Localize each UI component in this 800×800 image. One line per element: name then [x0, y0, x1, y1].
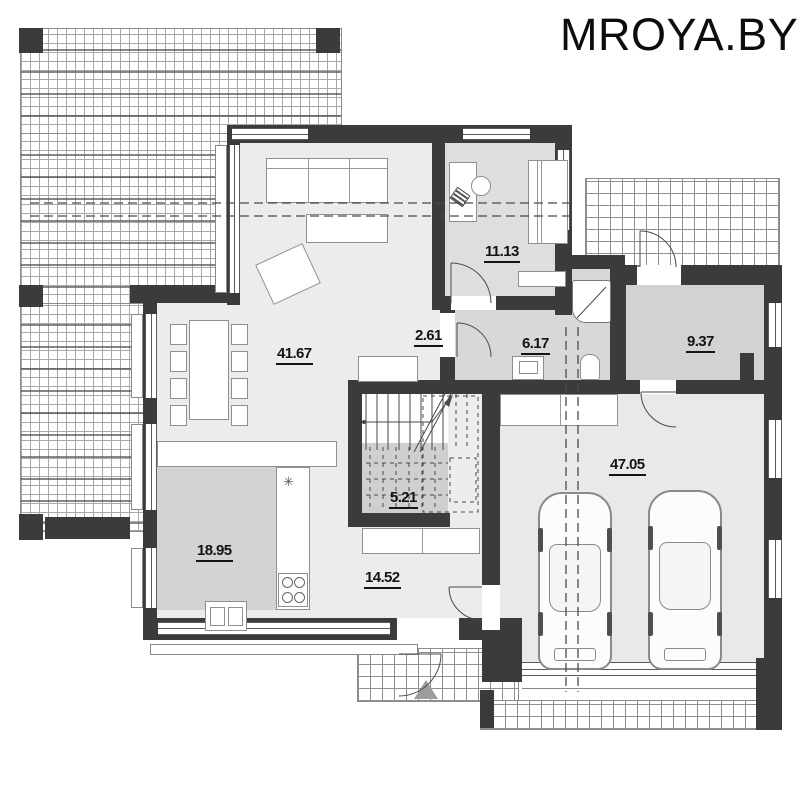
stove: [278, 573, 308, 607]
car: [538, 492, 612, 670]
car-tail: [554, 648, 596, 661]
pergola-column: [19, 514, 43, 540]
dining-chair: [170, 378, 187, 399]
room-label-utility: 9.37: [686, 334, 715, 353]
car-roof: [549, 544, 601, 612]
wall: [496, 296, 572, 310]
window: [158, 622, 390, 635]
pergola-column: [19, 28, 43, 53]
burner-icon: [294, 592, 305, 603]
car: [648, 490, 722, 670]
wall: [482, 630, 522, 682]
door-opening: [640, 265, 681, 285]
wheel-icon: [717, 612, 722, 636]
car-tail: [664, 648, 706, 661]
wheel-icon: [607, 528, 612, 552]
kitchen-sink: [205, 601, 247, 631]
wall: [480, 690, 494, 728]
coffee-table: [306, 214, 388, 243]
window: [768, 303, 782, 347]
toilet: [580, 354, 600, 380]
office-cabinet: [518, 271, 566, 287]
window: [768, 540, 782, 598]
window: [768, 420, 782, 478]
entrance-arrow-icon: [414, 680, 438, 699]
garage-door-track: [522, 688, 756, 689]
window-sill: [131, 548, 143, 608]
office-bed: [528, 160, 568, 244]
bathroom-sink: [512, 356, 544, 380]
driveway-paving: [480, 700, 759, 730]
window: [232, 128, 308, 140]
extractor-fan-icon: ✳: [283, 474, 294, 490]
wall: [482, 392, 500, 585]
door-opening: [482, 585, 500, 630]
sink-bowl: [228, 607, 243, 626]
sink-bowl: [210, 607, 225, 626]
wheel-icon: [648, 612, 653, 636]
window: [145, 424, 157, 510]
window-sill: [131, 314, 143, 398]
room-label-living: 41.67: [276, 346, 313, 365]
room-label-office: 11.13: [484, 244, 520, 263]
dining-chair: [170, 324, 187, 345]
office-chair: [471, 176, 491, 196]
burner-icon: [282, 577, 293, 588]
pergola-column: [19, 285, 43, 307]
burner-icon: [294, 577, 305, 588]
window: [145, 314, 157, 398]
wall: [432, 133, 445, 310]
entry-porch-deck: [585, 178, 780, 267]
wall: [440, 357, 455, 390]
terrace-deck: [20, 28, 342, 135]
room-label-bathroom: 6.17: [521, 336, 550, 355]
hall-wardrobe: [362, 528, 480, 554]
window: [145, 548, 157, 608]
door-opening: [397, 618, 459, 640]
kitchen-sideboard: [157, 441, 337, 467]
shower: [572, 280, 611, 323]
window: [463, 128, 530, 140]
wall: [756, 658, 782, 730]
hall-bench: [358, 356, 418, 382]
dining-chair: [170, 351, 187, 372]
terrace-deck: [20, 133, 229, 305]
wheel-icon: [717, 526, 722, 550]
dining-chair: [231, 405, 248, 426]
wall: [558, 255, 625, 269]
room-label-hall: 2.61: [414, 328, 443, 347]
wheel-icon: [538, 528, 543, 552]
door-opening: [640, 380, 676, 394]
wall: [348, 390, 362, 527]
wheel-icon: [607, 612, 612, 636]
terrace-deck: [20, 303, 145, 532]
room-label-kitchen: 18.95: [196, 543, 233, 562]
room-label-hallway: 14.52: [364, 570, 401, 589]
wall: [348, 513, 450, 527]
sink-bowl: [519, 361, 538, 374]
window-sill: [150, 644, 418, 655]
window-sill: [215, 145, 227, 293]
wall: [45, 517, 130, 539]
sofa: [266, 158, 388, 203]
dining-chair: [170, 405, 187, 426]
dining-chair: [231, 351, 248, 372]
dining-chair: [231, 378, 248, 399]
dining-table: [189, 320, 229, 420]
room-label-garage: 47.05: [609, 457, 646, 476]
burner-icon: [282, 592, 293, 603]
floor-plan: ✳: [0, 0, 800, 800]
door-opening: [451, 296, 496, 310]
garage-shelf: [500, 394, 618, 426]
dining-chair: [231, 324, 248, 345]
door-opening: [443, 313, 455, 357]
car-roof: [659, 542, 711, 610]
window-sill: [131, 424, 143, 510]
wall: [740, 353, 754, 380]
window: [229, 145, 240, 293]
watermark: MROYA.BY: [560, 12, 792, 57]
pergola-column: [316, 28, 340, 53]
wheel-icon: [648, 526, 653, 550]
room-label-pantry: 5.21: [389, 490, 418, 509]
wheel-icon: [538, 612, 543, 636]
